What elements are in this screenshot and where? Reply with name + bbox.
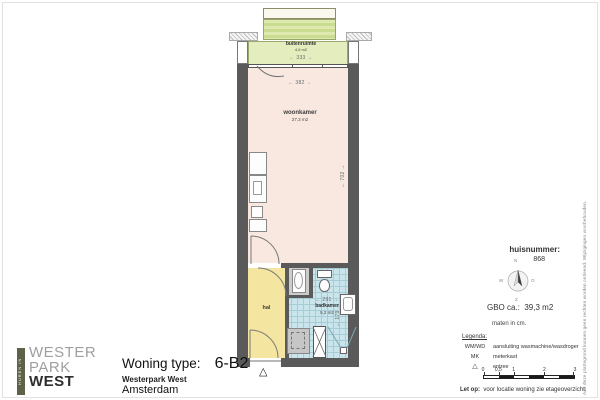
door-arc-balcony <box>257 66 284 77</box>
room-area-buitenruimte: 4,6 m2 <box>271 48 331 52</box>
woning-type-value: 6-B2 <box>215 355 249 373</box>
compass-w: W <box>499 278 503 283</box>
legend-desc-wmwd: aansluiting wasmachine/wasdroger <box>493 344 579 350</box>
logo-bar: HUREN IN <box>17 348 25 395</box>
legend-title: Legenda: <box>462 334 487 340</box>
compass-z: Z <box>515 297 518 302</box>
gbo-value: 39,3 m2 <box>524 303 553 312</box>
huisnummer-label: huisnummer: <box>470 245 560 254</box>
huisnummer-value: 868 <box>470 256 545 263</box>
logo-vertical-text: HUREN IN <box>17 348 25 395</box>
compass-icon <box>502 263 534 299</box>
note-label: Let op: <box>460 387 480 393</box>
logo-wordmark: WESTER PARK WEST <box>29 346 96 390</box>
floorplan-page: buitenruimte 4,6 m2 ← 333 → ← 382 → woon… <box>0 0 600 400</box>
legend-key-mk: MK <box>459 354 491 360</box>
legend-desc-mk: meterkast <box>493 354 517 360</box>
legend-key-wmwd: WM/WD <box>459 344 491 350</box>
project-name: Westerpark West <box>122 375 187 384</box>
note-text: voor locatie woning zie etageoverzicht. <box>483 387 586 393</box>
scale-bar-labels: 0 0,5 1 2 3 <box>483 367 575 373</box>
note-line: Let op: voor locatie woning zie etageove… <box>460 387 586 393</box>
dimension: ← 702 → <box>340 146 346 206</box>
room-area-badkamer: 5,2 m2 <box>300 311 354 316</box>
dimension: ← 179 → <box>335 295 341 335</box>
compass-n: N <box>514 258 517 263</box>
dimension: ← 382 → <box>270 80 330 86</box>
room-area-woonkamer: 27,3 m2 <box>260 118 340 123</box>
door-arc-hal <box>258 268 286 296</box>
woning-type-label: Woning type: <box>122 356 201 371</box>
compass-o: O <box>531 278 535 283</box>
room-label-woonkamer: woonkamer <box>260 110 340 117</box>
room-label-hal: hal <box>248 305 285 311</box>
city-name: Amsterdam <box>122 384 178 396</box>
dimension: ← 333 → <box>271 55 331 61</box>
gbo-line: GBO ca.: 39,3 m2 <box>487 303 553 312</box>
gbo-label: GBO ca.: <box>487 303 520 312</box>
disclaimer-text: Aan deze plattegrond kunnen geen rechten… <box>582 150 587 395</box>
door-arc-entrance <box>250 330 278 358</box>
scale-bar <box>483 375 575 379</box>
shower-slope-icon <box>347 327 356 348</box>
logo-line-3: WEST <box>29 375 96 390</box>
units-note: maten in cm. <box>492 321 526 327</box>
title-block: Woning type: 6-B2 <box>122 355 248 373</box>
door-arc-woonkamer <box>251 236 279 264</box>
room-label-badkamer: badkamer <box>300 304 354 310</box>
entree-marker-icon: △ <box>259 365 267 378</box>
